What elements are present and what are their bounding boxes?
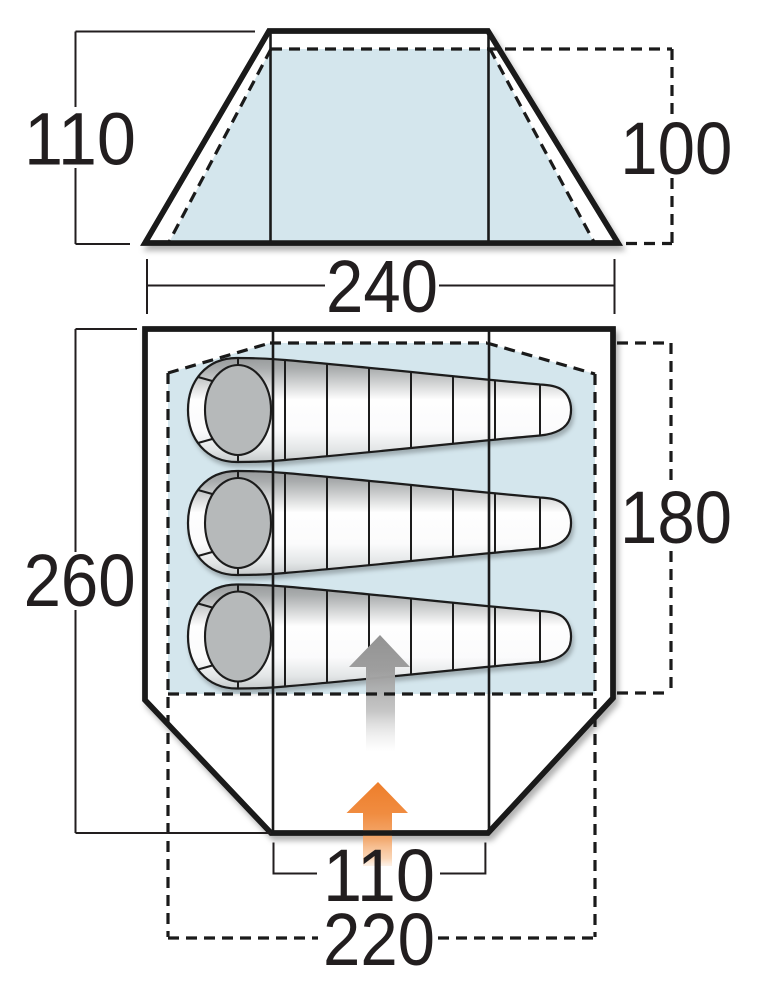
svg-text:240: 240 xyxy=(326,245,438,328)
svg-text:110: 110 xyxy=(24,98,136,181)
svg-text:260: 260 xyxy=(24,539,136,622)
svg-text:180: 180 xyxy=(620,476,732,559)
svg-text:220: 220 xyxy=(323,898,435,981)
svg-text:100: 100 xyxy=(620,107,732,190)
